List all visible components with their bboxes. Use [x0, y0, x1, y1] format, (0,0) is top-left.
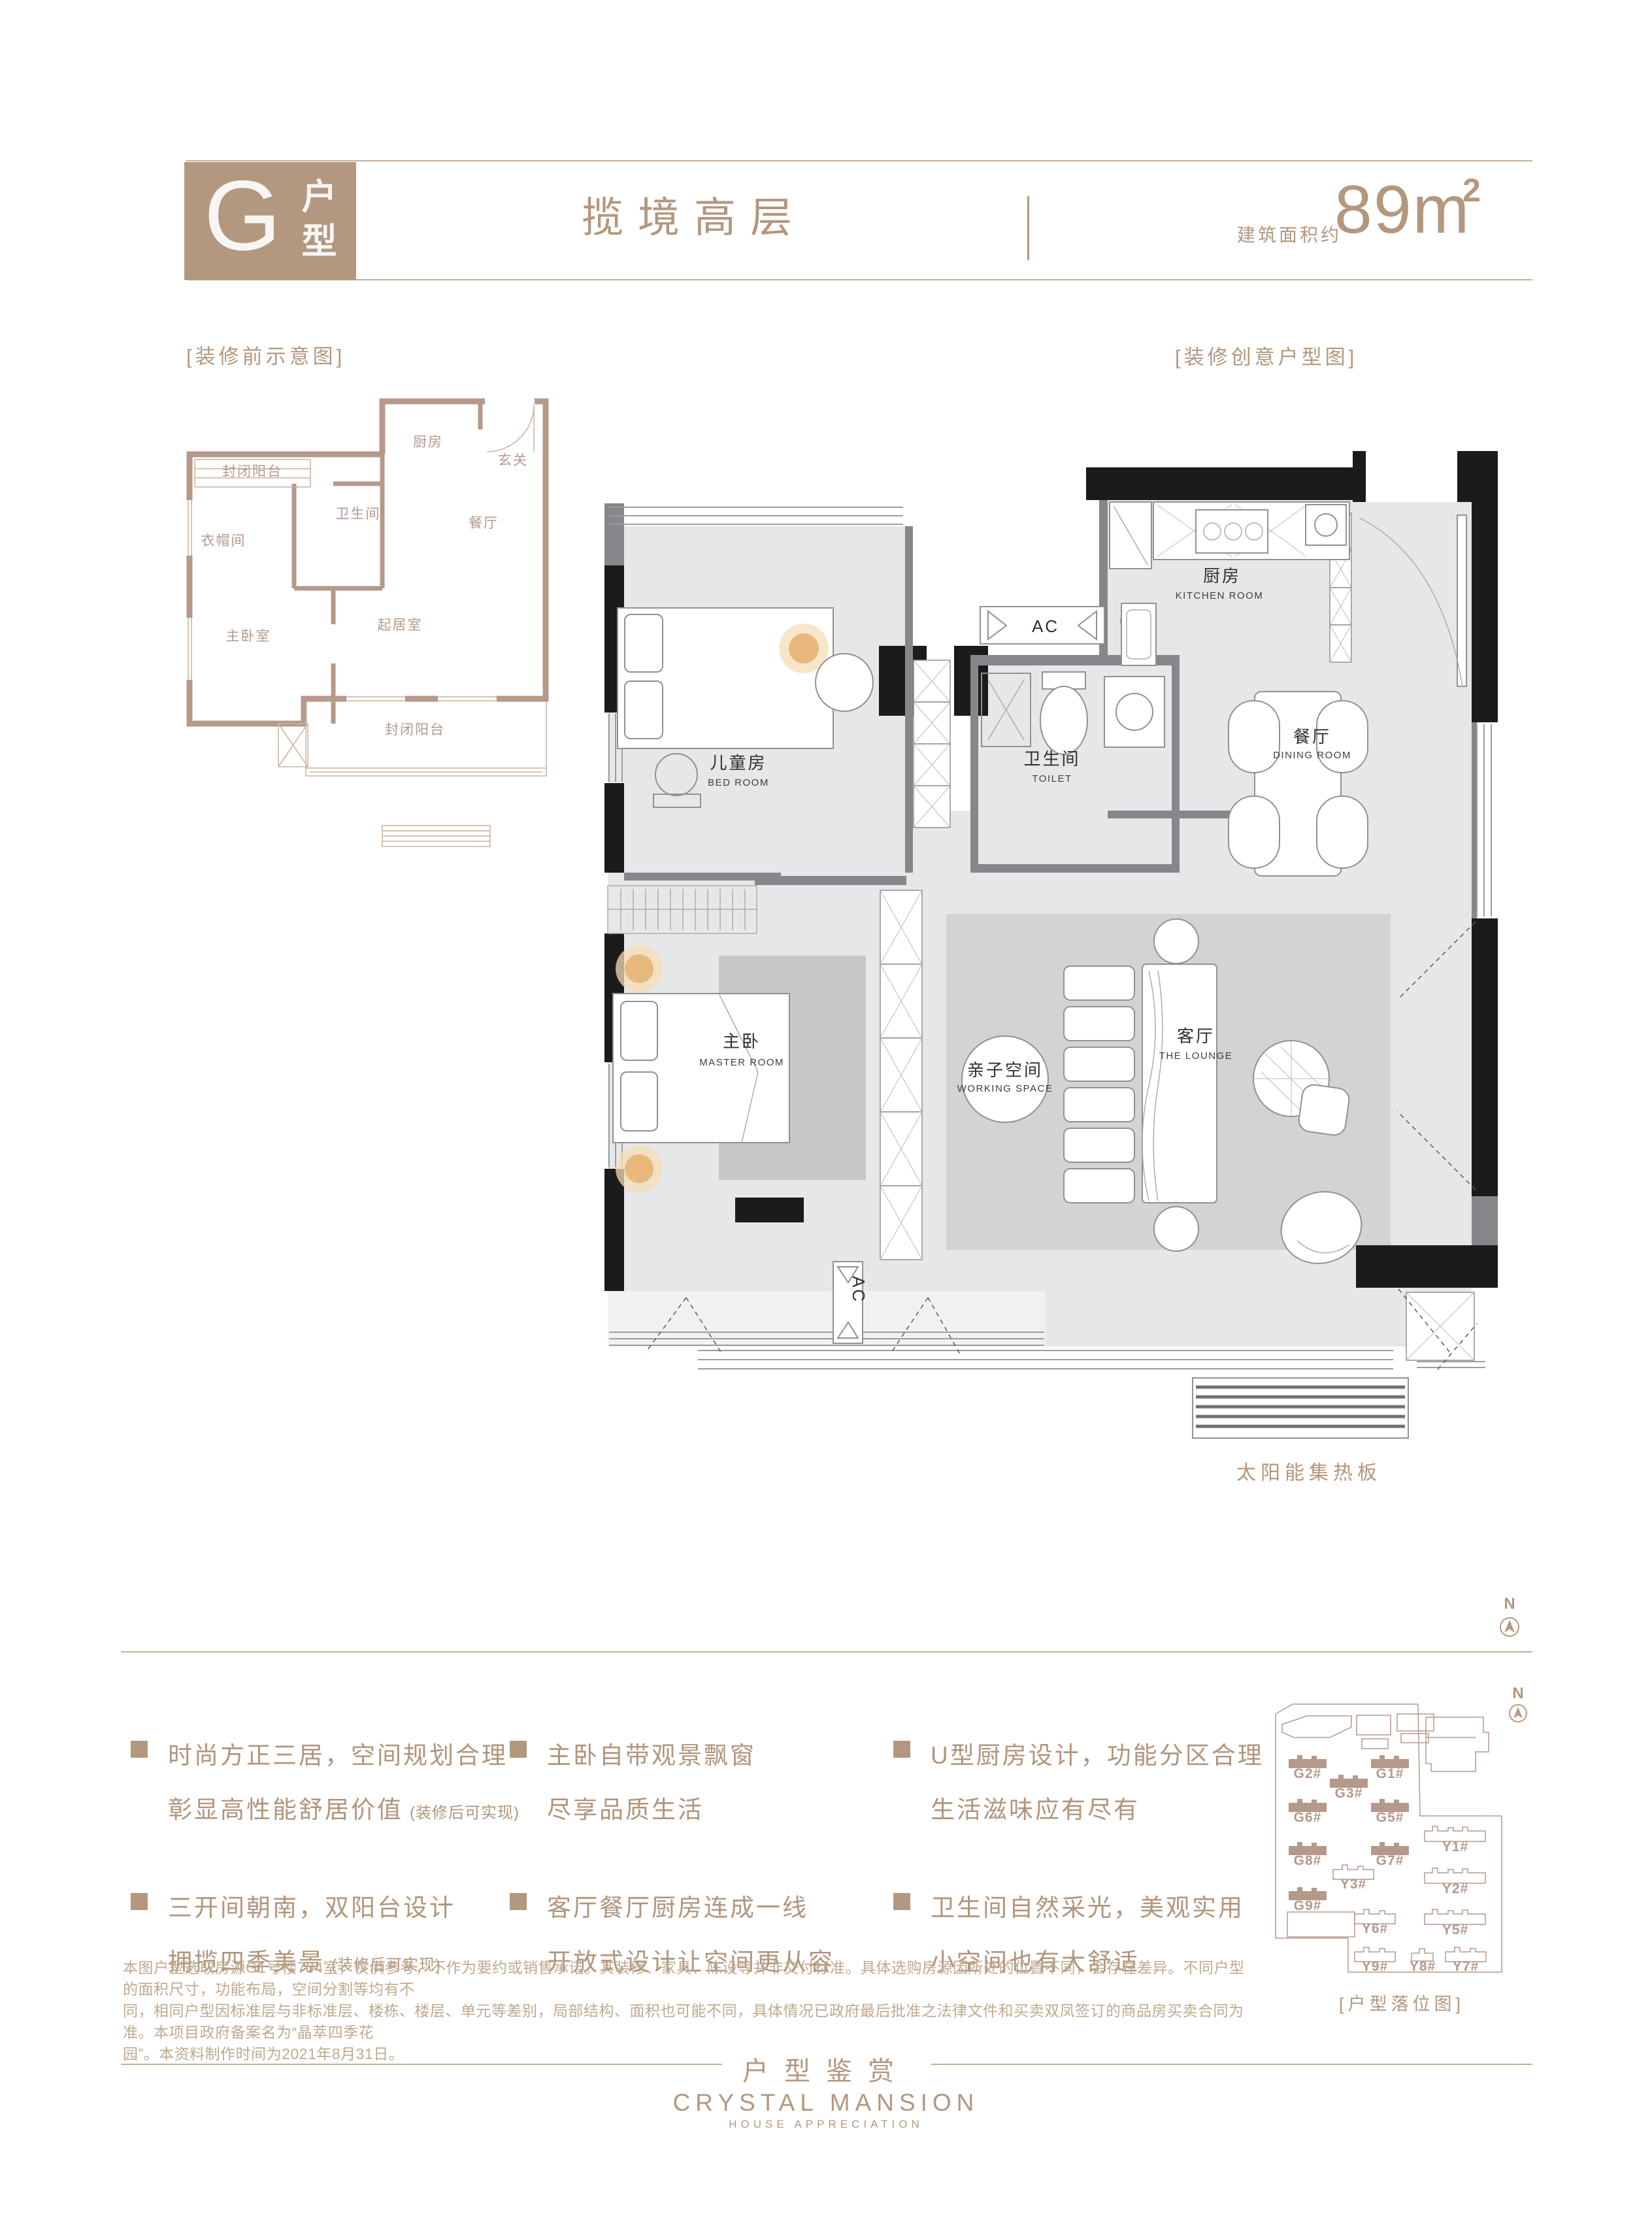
kitchen-sink-box: [1306, 505, 1346, 545]
small-room-master: 主卧室: [226, 629, 271, 644]
window-bottom-band: [698, 1350, 1393, 1369]
small-room-balcony-top: 封闭阳台: [222, 464, 282, 479]
compass-main: N: [1491, 1593, 1528, 1645]
wall-entry-stub: [1353, 451, 1366, 502]
dining-chair-3: [1229, 796, 1280, 868]
header-top-rule: [186, 160, 1532, 161]
small-room-living: 起居室: [378, 618, 423, 633]
amenity-shape-4: [1397, 1714, 1434, 1731]
room-toilet-en: TOILET: [1032, 773, 1072, 784]
floor-entry: [1353, 502, 1472, 818]
bullet-square-icon: [510, 1741, 527, 1758]
room-working-en: WORKING SPACE: [957, 1083, 1053, 1094]
building-label: G8#: [1294, 1853, 1322, 1868]
header-bottom-rule: [186, 279, 1532, 280]
area-superscript: 2: [1462, 171, 1481, 209]
kitchen-hob: [1196, 510, 1268, 553]
wall-right-upper: [1472, 502, 1498, 722]
dining-chair-4: [1317, 796, 1368, 868]
amenity-shape-1: [1282, 1716, 1351, 1737]
room-master-cn: 主卧: [723, 1032, 761, 1051]
wall-bedroom-right: [905, 526, 913, 873]
bullet-square-icon: [131, 1741, 148, 1758]
wall-left-top: [604, 503, 624, 565]
wall-entry-corner: [1457, 451, 1498, 502]
ac-label-top: AC: [1032, 616, 1059, 636]
disclaimer: 本图户型选取房源G1号楼704室，仅供参考，不作为要约或销售承诺。其装修、家具、…: [123, 1957, 1253, 2065]
building-label: G7#: [1376, 1853, 1404, 1868]
wall-toilet-left: [970, 665, 978, 864]
building-label: Y7#: [1453, 1959, 1479, 1974]
building-label: Y6#: [1362, 1921, 1388, 1936]
pouf-bottom: [1154, 1207, 1198, 1251]
building-label: G5#: [1376, 1810, 1404, 1825]
small-plan-entry-door-arc: [487, 405, 534, 452]
building-label: G3#: [1335, 1786, 1363, 1801]
page-title: 揽境高层: [582, 184, 806, 244]
feature-item: U型厨房设计，功能分区合理 生活滋味应有尽有: [893, 1736, 1264, 1825]
site-compass-needle-icon: [1513, 1707, 1523, 1719]
building-label: G6#: [1294, 1810, 1322, 1825]
unit-type-label: 户型: [290, 178, 342, 267]
building-label: Y5#: [1442, 1922, 1468, 1937]
pouf-top: [1154, 919, 1198, 964]
amenity-shape-3: [1362, 1739, 1388, 1749]
feature-line1: 时尚方正三居，空间规划合理: [168, 1736, 520, 1771]
toilet-bowl: [1040, 686, 1087, 754]
footer-subtitle: HOUSE APPRECIATION: [0, 2118, 1652, 2131]
feature-line1: 主卧自带观景飘窗: [547, 1736, 756, 1771]
wall-master-bottom: [735, 1198, 804, 1222]
compass-needle-icon: [1504, 1620, 1515, 1633]
building-label: Y1#: [1442, 1839, 1468, 1854]
small-plan-elevator-x: [278, 724, 308, 767]
wall-kitchen-top: [1086, 467, 1353, 500]
side-table-bedroom: [816, 654, 873, 711]
wall-left-4: [604, 1169, 624, 1291]
room-dining-en: DINING ROOM: [1273, 750, 1351, 761]
room-kitchen-en: KITCHEN ROOM: [1176, 590, 1264, 601]
building-label: Y3#: [1340, 1877, 1366, 1892]
bullet-square-icon: [893, 1741, 910, 1758]
section-separator: [121, 1651, 1532, 1652]
window-bottom-right-strip: [1417, 1362, 1485, 1367]
bullet-square-icon: [131, 1893, 148, 1910]
building-label: Y2#: [1442, 1881, 1468, 1896]
room-lounge-cn: 客厅: [1177, 1026, 1215, 1046]
room-kitchen-cn: 厨房: [1203, 566, 1241, 586]
site-compass-n-letter: N: [1512, 1686, 1523, 1702]
solar-panel-label: 太阳能集热板: [1221, 1456, 1397, 1485]
feature-line1: U型厨房设计，功能分区合理: [931, 1736, 1264, 1771]
feature-line2: 彰显高性能舒居价值: [168, 1796, 403, 1823]
small-room-foyer: 玄关: [498, 453, 528, 468]
amenity-shape-5: [1401, 1734, 1429, 1743]
wall-corner-bottom-right: [1356, 1245, 1498, 1288]
feature-line1: 客厅餐厅厨房连成一线: [547, 1888, 841, 1923]
before-plan-label: [装修前示意图]: [186, 340, 345, 369]
small-floor-plan: 封闭阳台 厨房 玄关 卫生间 衣帽间 餐厅 主卧室 起居室 封闭阳台: [183, 389, 595, 860]
unit-type-badge: G 户型: [184, 162, 356, 280]
footer-title-cn: 户型鉴赏: [0, 2050, 1652, 2088]
solar-panel-lines: [1196, 1387, 1405, 1426]
unit-type-letter: G: [204, 157, 281, 275]
room-master-en: MASTER ROOM: [699, 1057, 784, 1068]
wall-toilet-bottom: [970, 864, 1180, 873]
ac-label-bottom: AC: [849, 1276, 868, 1303]
small-plan-entry-opening: [485, 397, 535, 405]
small-plan-window-gap-1: [186, 500, 193, 556]
building-label: G2#: [1294, 1766, 1322, 1781]
small-plan-window-gap-2: [186, 618, 193, 680]
window-right: [1477, 724, 1491, 916]
small-plan-outer-wall: [190, 401, 546, 724]
large-floor-plan: AC AC: [588, 418, 1529, 1445]
disclaimer-line: 同，相同户型因标准层与非标准层、楼栋、楼层、单元等差别，局部结构、面积也可能不同…: [123, 2000, 1253, 2043]
header-divider: [1027, 196, 1029, 260]
wall-right-frame: [1472, 722, 1477, 918]
amenity-shape-2: [1357, 1715, 1391, 1735]
small-plan-solar-strip-lines: [382, 831, 490, 841]
site-plan: N G2# G1# G3# G6# G5# G8# G7# G9# Y1#: [1268, 1686, 1568, 2039]
site-open-lot: [1287, 1912, 1355, 1937]
feature-note: (装修后可实现): [410, 1804, 520, 1822]
area-prefix: 建筑面积约: [1237, 221, 1342, 247]
lamp-master-2: [625, 1154, 653, 1183]
wardrobe-column: [880, 890, 922, 1260]
disclaimer-line: 本图户型选取房源G1号楼704室，仅供参考，不作为要约或销售承诺。其装修、家具、…: [123, 1957, 1253, 2000]
small-room-dining: 餐厅: [469, 516, 499, 531]
feature-item: 时尚方正三居，空间规划合理 彰显高性能舒居价值(装修后可实现): [131, 1736, 520, 1825]
brochure-page: G 户型 揽境高层 建筑面积约 89m 2 [装修前示意图] [装修创意户型图]: [0, 0, 1652, 2231]
small-room-balcony-bottom: 封闭阳台: [385, 722, 445, 737]
wall-right-step: [1472, 1196, 1498, 1245]
small-plan-partitions-2: [333, 401, 480, 724]
ottoman: [1297, 1083, 1350, 1136]
building-label: G9#: [1294, 1898, 1322, 1913]
wall-toilet-right: [1172, 665, 1180, 864]
feature-line1: 卫生间自然采光，美观实用: [931, 1888, 1244, 1923]
room-dining-cn: 餐厅: [1293, 727, 1331, 746]
building-label: Y9#: [1362, 1959, 1388, 1974]
feature-line2: 尽享品质生活: [547, 1796, 704, 1823]
bullet-square-icon: [893, 1893, 910, 1910]
room-bedroom-cn: 儿童房: [710, 753, 767, 773]
feature-item: 主卧自带观景飘窗 尽享品质生活: [510, 1736, 756, 1825]
lamp-bedroom: [789, 633, 819, 663]
room-lounge-en: THE LOUNGE: [1159, 1050, 1233, 1062]
room-bedroom-en: BED ROOM: [708, 777, 769, 788]
dining-chair-1: [1229, 701, 1280, 773]
wall-right-lower: [1472, 918, 1498, 1196]
wall-master-top: [755, 876, 906, 885]
room-working-cn: 亲子空间: [967, 1060, 1043, 1080]
small-room-bathroom: 卫生间: [336, 507, 381, 522]
closet-column: [914, 660, 950, 828]
vanity-counter: [1104, 677, 1165, 747]
bed-master: [613, 994, 789, 1143]
bullet-square-icon: [510, 1893, 527, 1910]
building-label: Y8#: [1410, 1959, 1436, 1974]
room-toilet-cn: 卫生间: [1023, 749, 1080, 769]
small-plan-bottom-balcony: [306, 701, 546, 776]
feature-line2: 生活滋味应有尽有: [931, 1796, 1140, 1823]
neighbor-building: [1426, 1717, 1489, 1771]
window-bedroom-top-band: [609, 507, 903, 524]
creative-plan-label: [装修创意户型图]: [1175, 341, 1357, 370]
small-plan-partitions-1: [294, 401, 382, 588]
building-label: G1#: [1376, 1766, 1404, 1781]
area-value: 89m: [1334, 171, 1470, 249]
entry-door-leaf: [1457, 515, 1466, 686]
wall-left-2: [604, 783, 624, 873]
feature-line1: 三开间朝南，双阳台设计: [168, 1888, 455, 1923]
small-room-cloakroom: 衣帽间: [201, 533, 246, 548]
small-room-kitchen: 厨房: [413, 435, 443, 450]
lamp-master-1: [625, 954, 653, 983]
site-plan-label: [户型落位图]: [1333, 1990, 1470, 2015]
compass-n-letter: N: [1504, 1595, 1515, 1613]
footer-title-en: CRYSTAL MANSION: [0, 2089, 1652, 2117]
